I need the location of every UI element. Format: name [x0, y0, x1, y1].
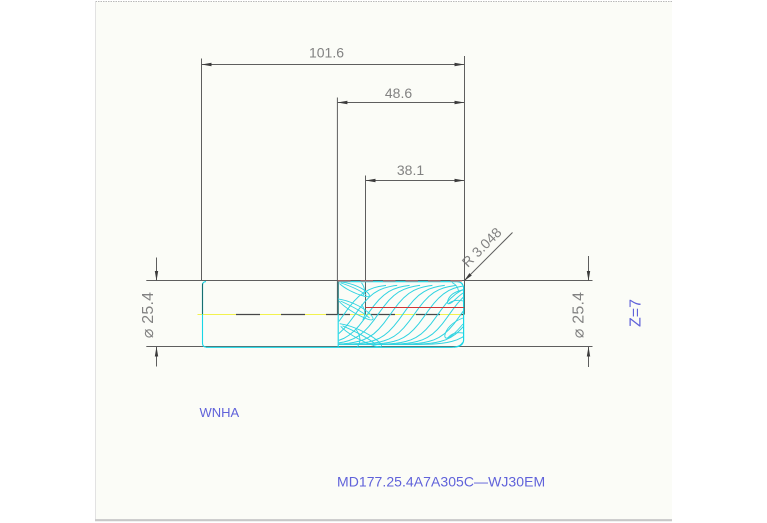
svg-text:WNHA: WNHA: [200, 405, 240, 420]
svg-text:101.6: 101.6: [309, 45, 344, 61]
svg-text:⌀ 25.4: ⌀ 25.4: [571, 292, 588, 338]
svg-text:38.1: 38.1: [397, 162, 424, 178]
svg-text:MD177.25.4A7A305C—WJ30EM: MD177.25.4A7A305C—WJ30EM: [337, 474, 545, 490]
svg-text:Z=7: Z=7: [628, 299, 645, 327]
svg-text:48.6: 48.6: [385, 85, 412, 101]
svg-text:⌀ 25.4: ⌀ 25.4: [140, 292, 157, 338]
